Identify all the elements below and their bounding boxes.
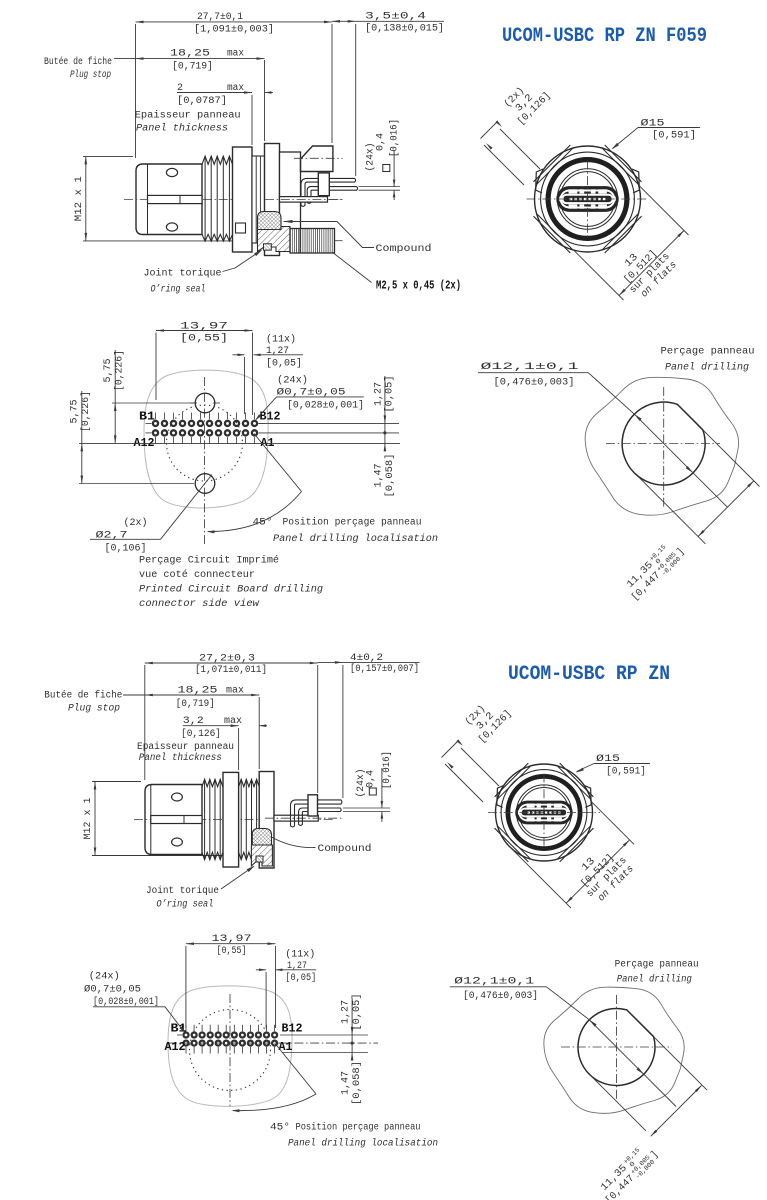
svg-text:Butée de fiche: Butée de fiche bbox=[44, 56, 112, 68]
svg-text:Panel thickness: Panel thickness bbox=[139, 752, 222, 764]
svg-text:[0,55]: [0,55] bbox=[217, 945, 247, 957]
svg-text:13,97: 13,97 bbox=[180, 322, 228, 333]
svg-text:UCOM-USBC RP ZN F059: UCOM-USBC RP ZN F059 bbox=[502, 25, 707, 48]
svg-text:(11x): (11x) bbox=[266, 334, 296, 346]
svg-text:Butée de fiche: Butée de fiche bbox=[44, 690, 122, 702]
svg-text:Compound: Compound bbox=[318, 843, 372, 855]
svg-text:Panel thickness: Panel thickness bbox=[136, 123, 228, 135]
svg-text:[0,058]: [0,058] bbox=[384, 454, 396, 498]
svg-text:[0,591]: [0,591] bbox=[652, 130, 696, 142]
svg-text:5,75: 5,75 bbox=[69, 400, 80, 424]
svg-text:4±0,2: 4±0,2 bbox=[350, 653, 383, 664]
svg-text:[0,476±0,003]: [0,476±0,003] bbox=[463, 990, 538, 1002]
svg-text:Ø0,7±0,05: Ø0,7±0,05 bbox=[84, 984, 141, 996]
svg-text:[0,058]: [0,058] bbox=[351, 1061, 363, 1105]
svg-text:Plug stop: Plug stop bbox=[70, 69, 111, 81]
svg-text:(2x): (2x) bbox=[124, 517, 148, 529]
svg-text:A1: A1 bbox=[279, 1040, 293, 1054]
svg-text:Panel drilling: Panel drilling bbox=[617, 974, 692, 986]
svg-text:(24x): (24x) bbox=[277, 375, 308, 387]
svg-text:2: 2 bbox=[177, 83, 183, 94]
svg-text:B1: B1 bbox=[139, 410, 155, 424]
svg-text:1,27: 1,27 bbox=[340, 1000, 351, 1024]
svg-text:[0,126]: [0,126] bbox=[181, 728, 221, 740]
svg-text:27,2±0,3: 27,2±0,3 bbox=[199, 654, 255, 665]
svg-text:(24x): (24x) bbox=[89, 971, 120, 983]
svg-text:[0,55]: [0,55] bbox=[180, 333, 228, 345]
svg-text:[0,226]: [0,226] bbox=[80, 391, 92, 432]
svg-text:[1,071±0,011]: [1,071±0,011] bbox=[195, 664, 267, 676]
svg-text:O’ring seal: O’ring seal bbox=[151, 284, 206, 296]
svg-text:1,47: 1,47 bbox=[340, 1071, 351, 1095]
svg-text:Perçage Circuit Imprimé: Perçage Circuit Imprimé bbox=[139, 555, 279, 567]
svg-text:max: max bbox=[227, 83, 244, 94]
svg-text:Ø12,1±0,1: Ø12,1±0,1 bbox=[454, 976, 534, 988]
svg-text:3,2: 3,2 bbox=[183, 716, 204, 727]
svg-text:[0,0787]: [0,0787] bbox=[177, 95, 227, 107]
svg-text:vue coté connecteur: vue coté connecteur bbox=[139, 569, 255, 581]
svg-text:13,97: 13,97 bbox=[212, 934, 252, 945]
svg-text:45°: 45° bbox=[253, 517, 273, 529]
svg-text:Joint torique: Joint torique bbox=[146, 885, 219, 897]
svg-text:[0,016]: [0,016] bbox=[381, 751, 393, 789]
svg-text:1,27: 1,27 bbox=[374, 382, 385, 406]
svg-text:Perçage panneau: Perçage panneau bbox=[615, 960, 699, 971]
svg-text:Panel drilling localisation: Panel drilling localisation bbox=[288, 1138, 438, 1150]
svg-text:[0,138±0,015]: [0,138±0,015] bbox=[365, 23, 444, 35]
svg-text:Epaisseur panneau: Epaisseur panneau bbox=[137, 741, 234, 753]
svg-text:B1: B1 bbox=[171, 1022, 187, 1036]
svg-text:1,27: 1,27 bbox=[266, 346, 289, 357]
svg-text:3,5±0,4: 3,5±0,4 bbox=[365, 12, 426, 23]
svg-text:Epaisseur panneau: Epaisseur panneau bbox=[135, 110, 241, 122]
svg-text:M12 x 1: M12 x 1 bbox=[83, 798, 94, 840]
svg-text:connector side view: connector side view bbox=[139, 598, 260, 610]
svg-text:max: max bbox=[227, 49, 244, 60]
svg-text:[1,091±0,003]: [1,091±0,003] bbox=[194, 24, 274, 36]
svg-text:5,75: 5,75 bbox=[103, 359, 114, 383]
svg-text:18,25: 18,25 bbox=[178, 686, 218, 697]
svg-text:Plug stop: Plug stop bbox=[68, 703, 120, 715]
svg-text:[0,05]: [0,05] bbox=[384, 376, 396, 413]
svg-text:0,4: 0,4 bbox=[375, 133, 386, 151]
svg-text:Position perçage panneau: Position perçage panneau bbox=[283, 517, 422, 529]
svg-text:[0,719]: [0,719] bbox=[172, 61, 213, 73]
svg-text:Printed Circuit Board drilling: Printed Circuit Board drilling bbox=[139, 584, 323, 596]
svg-text:max: max bbox=[224, 716, 242, 727]
svg-text:27,7±0,1: 27,7±0,1 bbox=[197, 12, 243, 23]
svg-text:1,27: 1,27 bbox=[287, 961, 307, 972]
svg-text:[0,157±0,007]: [0,157±0,007] bbox=[350, 663, 419, 675]
svg-text:[0,591]: [0,591] bbox=[606, 766, 646, 778]
svg-text:[0,476±0,003]: [0,476±0,003] bbox=[494, 377, 575, 389]
svg-text:Joint torique: Joint torique bbox=[144, 268, 222, 280]
svg-text:45°: 45° bbox=[270, 1122, 290, 1134]
svg-text:[0,016]: [0,016] bbox=[389, 119, 401, 157]
svg-text:B12: B12 bbox=[282, 1022, 303, 1036]
svg-text:[0,05]: [0,05] bbox=[351, 994, 363, 1031]
svg-text:M2,5 x 0,45 (2x): M2,5 x 0,45 (2x) bbox=[376, 279, 461, 293]
svg-text:1,47: 1,47 bbox=[374, 464, 385, 488]
svg-text:[0,719]: [0,719] bbox=[176, 698, 215, 710]
svg-text:Compound: Compound bbox=[376, 243, 432, 255]
svg-text:max: max bbox=[226, 686, 244, 697]
svg-text:Ø12,1±0,1: Ø12,1±0,1 bbox=[481, 361, 579, 373]
svg-text:(11x): (11x) bbox=[285, 949, 315, 961]
svg-text:[0,106]: [0,106] bbox=[105, 543, 147, 555]
svg-text:[0,05]: [0,05] bbox=[285, 972, 316, 984]
svg-text:Panel drilling: Panel drilling bbox=[665, 362, 749, 374]
svg-text:Panel drilling localisation: Panel drilling localisation bbox=[273, 533, 438, 545]
svg-text:Position perçage panneau: Position perçage panneau bbox=[296, 1122, 421, 1134]
svg-text:UCOM-USBC RP ZN: UCOM-USBC RP ZN bbox=[508, 663, 670, 686]
svg-text:M12 x 1: M12 x 1 bbox=[74, 176, 85, 221]
svg-text:[0,05]: [0,05] bbox=[266, 358, 302, 370]
svg-text:0,4: 0,4 bbox=[365, 770, 376, 788]
svg-text:Perçage panneau: Perçage panneau bbox=[661, 347, 755, 358]
svg-text:O’ring seal: O’ring seal bbox=[156, 899, 213, 911]
svg-text:[0,028±0,001]: [0,028±0,001] bbox=[287, 400, 364, 412]
svg-text:A12: A12 bbox=[165, 1040, 186, 1054]
svg-text:18,25: 18,25 bbox=[170, 49, 210, 60]
svg-text:[0,226]: [0,226] bbox=[114, 350, 126, 391]
